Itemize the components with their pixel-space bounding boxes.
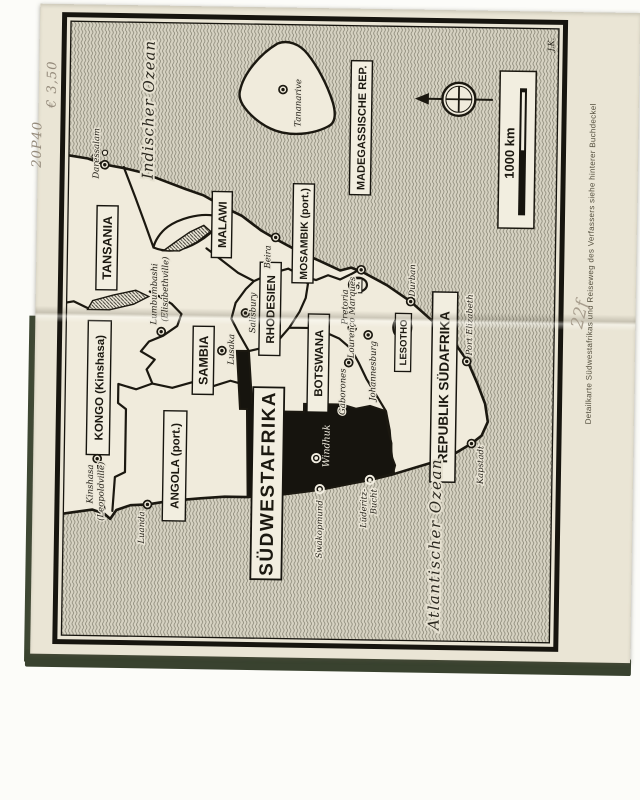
city-label-salisbury: Salisbury: [248, 292, 259, 333]
country-label-madagaskar: MADEGASSISCHE REP.: [355, 65, 369, 190]
city-dot-gaborones: [345, 359, 353, 367]
country-label-rhodesien: RHODESIEN: [265, 275, 278, 344]
africa-map: 1000 km TANSANIA KONGO (Kinshasa) ANGOLA: [50, 10, 570, 654]
map-landscape: 1000 km TANSANIA KONGO (Kinshasa) ANGOLA: [50, 10, 570, 654]
city-dot-kapstadt: [467, 439, 475, 447]
country-label-tansania: TANSANIA: [100, 216, 115, 280]
city-label-gaborones: Gaborones: [338, 368, 349, 415]
city-dot-lumbumbashi: [157, 328, 165, 336]
handwritten-price-note-2: € 3,50: [45, 60, 61, 108]
city-label-swakopmund: Swakopmund: [315, 500, 326, 559]
country-label-kongo: KONGO (Kinshasa): [93, 335, 107, 441]
country-label-angola: ANGOLA (port.): [169, 423, 182, 509]
city-label-lumbumbashi: Lumbumbashi: [149, 263, 160, 326]
book: 1000 km TANSANIA KONGO (Kinshasa) ANGOLA: [28, 4, 640, 689]
city-label-durban: Durban: [408, 264, 419, 297]
country-label-malawi: MALAWI: [217, 201, 230, 248]
city-dot-port-elizabeth: [463, 357, 471, 365]
city-dot-johannesburg: [364, 331, 372, 339]
city-dot-durban: [407, 298, 415, 306]
city-dot-lourenco-marques: [357, 266, 365, 274]
cartographer-signature: J.K.: [547, 38, 556, 54]
city-label-kinshasa: Kinshasa: [85, 464, 96, 504]
margin-caption: Detailkarte Südwestafrikas und Reiseweg …: [584, 103, 598, 424]
city-label-beira: Beira: [263, 245, 273, 269]
scale-label: 1000 km: [502, 127, 518, 179]
city-label-luederitz-bucht: Bucht: [369, 488, 379, 515]
city-label-daressalam: Daressalam: [92, 128, 103, 180]
city-label-luederitz: Lüderitz-: [359, 489, 370, 529]
country-label-lesotho: LESOTHO: [398, 319, 410, 365]
city-label-port-elizabeth: Port Elizabeth: [465, 294, 476, 356]
ocean-label-atlantic: Atlantischer Ozean: [424, 458, 445, 632]
map-rotated-wrapper: 1000 km TANSANIA KONGO (Kinshasa) ANGOLA: [50, 10, 570, 654]
city-dot-lusaka: [218, 347, 226, 355]
city-dot-tananarive: [279, 85, 287, 93]
ocean-label-indian: Indischer Ozean: [139, 40, 159, 181]
country-label-sambia: SAMBIA: [196, 336, 211, 386]
country-label-suedafrika: REPUBLIK SÜDAFRIKA: [435, 311, 452, 464]
city-label-lusaka: Lusaka: [227, 334, 237, 366]
city-dot-beira: [272, 233, 280, 241]
scanned-book-page: 1000 km TANSANIA KONGO (Kinshasa) ANGOLA: [0, 0, 640, 800]
island: [102, 150, 107, 155]
endpaper-page: 1000 km TANSANIA KONGO (Kinshasa) ANGOLA: [30, 4, 640, 663]
city-dot-luanda: [143, 500, 151, 508]
handwritten-price-note-1: 20P40: [30, 121, 46, 168]
region-label-suedwestafrika: SÜDWESTAFRIKA: [256, 391, 280, 576]
city-label-johannesburg: Johannesburg: [368, 340, 379, 403]
city-label-kinshasa-alt: (Leopoldville): [95, 462, 107, 521]
country-label-botswana: BOTSWANA: [313, 330, 326, 397]
city-label-pretoria: Pretoria: [340, 289, 351, 325]
city-label-luanda: Luanda: [137, 511, 148, 544]
city-label-tananarive: Tananarive: [293, 79, 304, 127]
city-dot-daressalam: [101, 161, 109, 169]
country-label-mosambik: MOSAMBIK (port.): [298, 188, 311, 280]
city-label-windhuk: Windhuk: [321, 424, 333, 467]
scale-bar: 1000 km: [498, 71, 536, 229]
city-label-kapstadt: Kapstadt: [476, 445, 487, 485]
city-label-lumbumbashi-alt: (Elisabethville): [159, 257, 171, 322]
